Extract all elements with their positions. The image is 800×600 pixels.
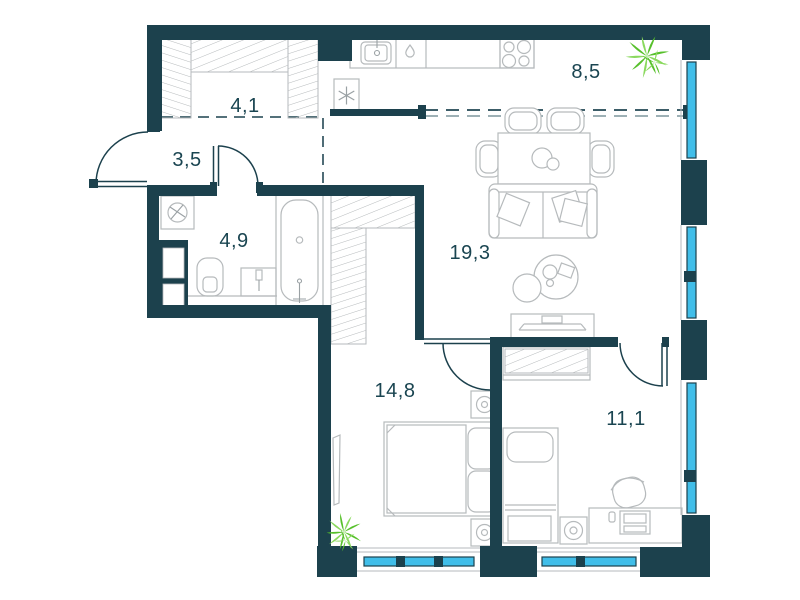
room-label-bedroom2: 11,1 — [606, 408, 645, 430]
dining-chair — [547, 108, 584, 134]
room-label-bathroom: 4,9 — [219, 230, 248, 252]
single-bed — [503, 428, 558, 543]
window-glass — [687, 62, 696, 158]
pillow — [559, 198, 587, 226]
window-glass — [364, 557, 474, 566]
window-glass — [687, 383, 696, 513]
window-glass — [542, 557, 636, 566]
hanging-rail-icon — [191, 39, 288, 72]
double-bed — [384, 422, 498, 516]
wall-niche — [163, 248, 184, 278]
dining-chair — [588, 141, 614, 177]
hanging-rail-icon — [505, 349, 588, 373]
room-label-hallway: 3,5 — [172, 149, 201, 171]
floor-plan-svg: 4,1 3,5 4,9 19,3 8,5 14,8 11,1 — [0, 0, 800, 600]
room-label-bedroom1: 14,8 — [375, 380, 416, 402]
room-label-living: 19,3 — [450, 242, 491, 264]
room-label-wardrobe: 4,1 — [230, 95, 259, 117]
dining-chair — [505, 108, 541, 134]
hanging-rail-icon — [331, 195, 415, 228]
sofa — [489, 184, 597, 238]
dining-table — [498, 133, 590, 184]
floor-plan-page: 4,1 3,5 4,9 19,3 8,5 14,8 11,1 — [0, 0, 800, 600]
bedroom2-closet — [503, 347, 590, 380]
room-label-kitchen: 8,5 — [571, 61, 600, 83]
